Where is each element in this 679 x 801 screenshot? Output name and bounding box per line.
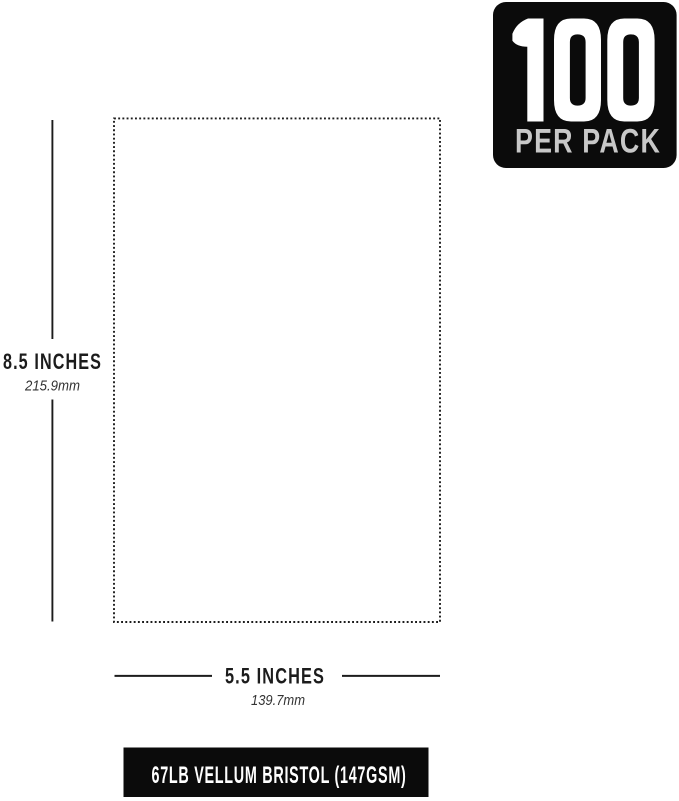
- svg-text:5.5 INCHES: 5.5 INCHES: [225, 664, 325, 689]
- svg-text:PER PACK: PER PACK: [515, 122, 661, 160]
- svg-text:67LB VELLUM BRISTOL (147GSM): 67LB VELLUM BRISTOL (147GSM): [152, 762, 407, 789]
- svg-text:215.9mm: 215.9mm: [24, 379, 80, 395]
- svg-text:139.7mm: 139.7mm: [251, 693, 305, 709]
- svg-text:8.5 INCHES: 8.5 INCHES: [3, 349, 102, 374]
